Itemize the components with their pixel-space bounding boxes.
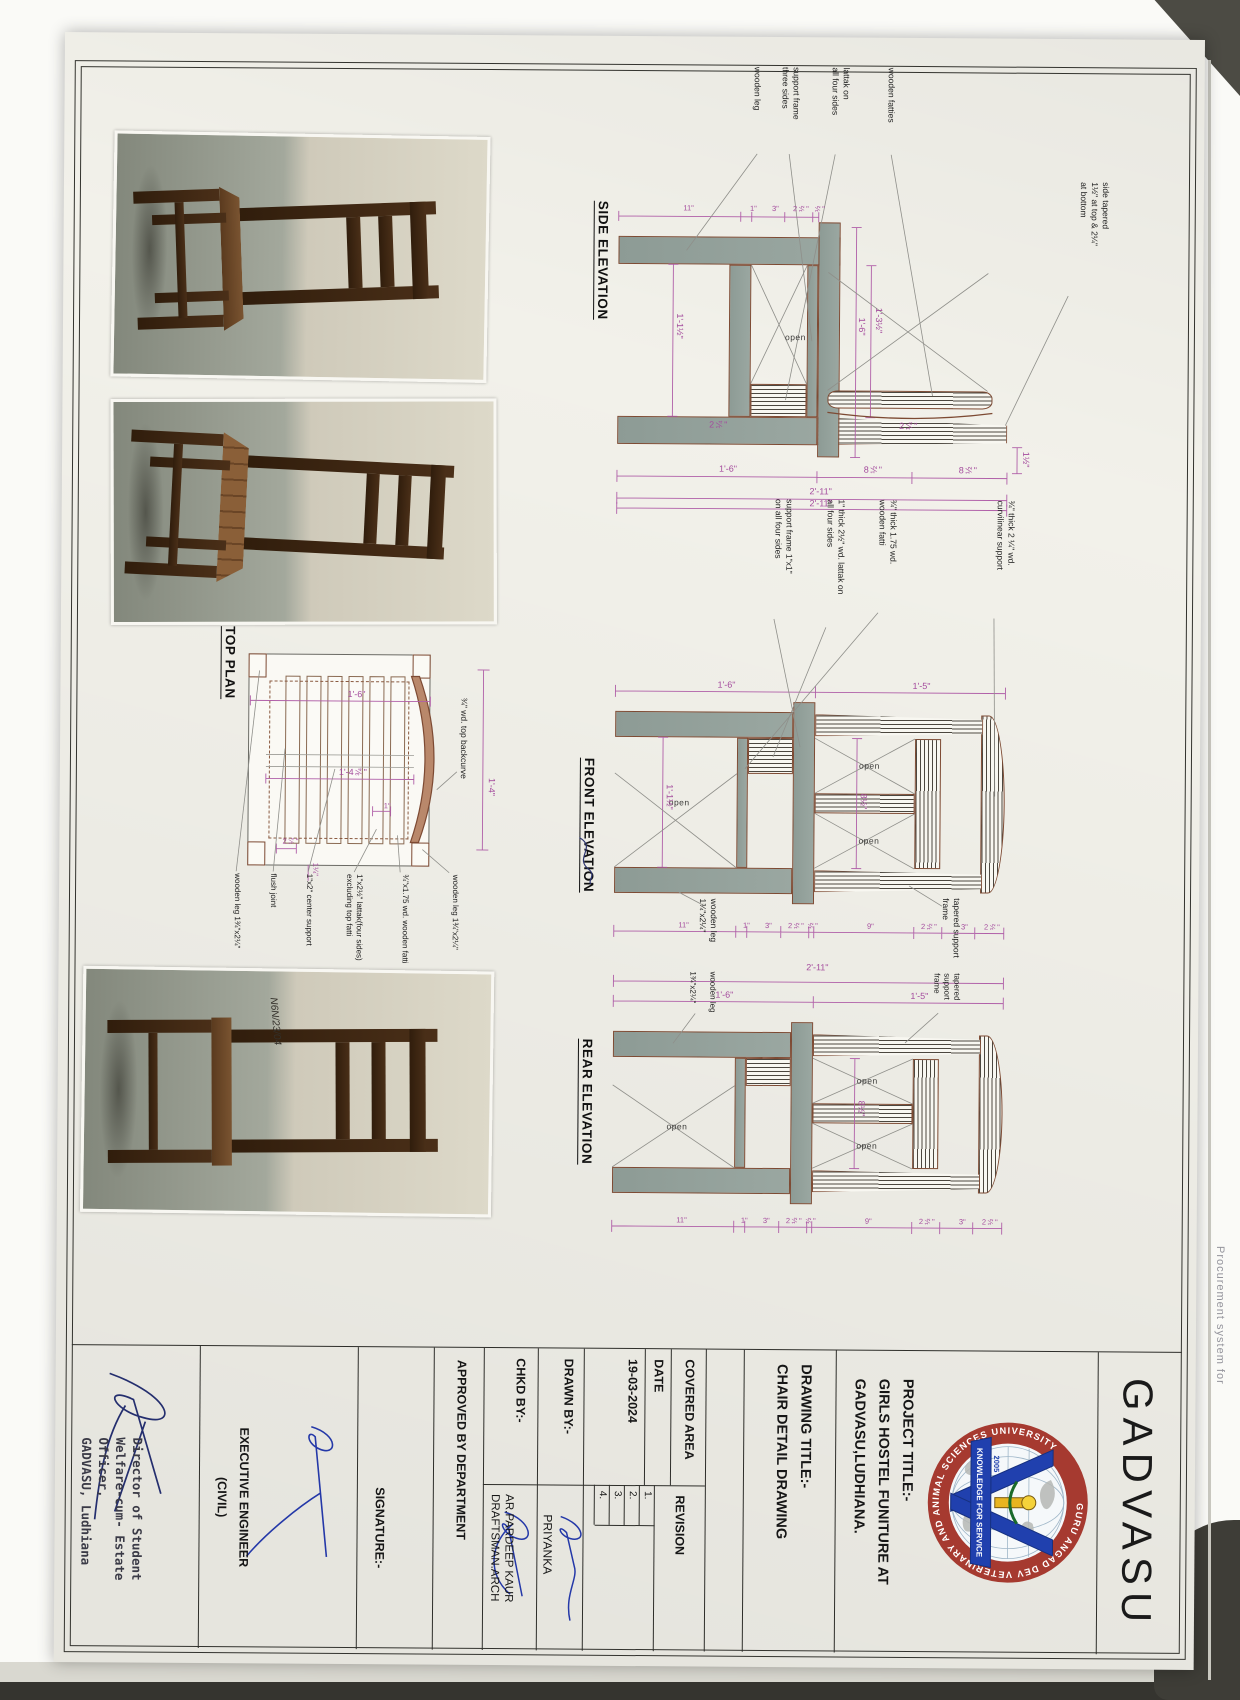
side-dim: ½" <box>813 204 825 213</box>
project-title-line1: GIRLS HOSTEL FUNITURE AT <box>874 1379 891 1585</box>
background-page-text: Procurement system for <box>1214 1246 1226 1385</box>
front-open-label: open <box>858 836 879 846</box>
stamp-line-3: Officer, <box>95 1437 112 1497</box>
cell-line <box>593 1485 595 1525</box>
stamp-cell: Director of Student Welfare-cum- Estate … <box>70 1345 200 1648</box>
front-label-6a: wooden leg <box>708 899 719 943</box>
rear-elevation-drawing: tapered support frame wooden leg 1¾"x2¼"… <box>562 971 1014 1249</box>
rear-dim: 8½" <box>856 1101 866 1117</box>
date-value: 19-03-2024 <box>625 1359 639 1423</box>
front-dim: 2½" <box>788 921 804 930</box>
rear-open-label: open <box>856 1141 877 1151</box>
side-dim: 3" <box>772 204 779 213</box>
side-dim-taper: 1½" <box>1021 452 1031 468</box>
drawing-title: CHAIR DETAIL DRAWING <box>773 1364 790 1539</box>
plan-label-1: wooden leg 1¾"x2¼" <box>450 875 461 965</box>
side-label-support-1: support frame <box>791 67 802 120</box>
drawing-sheet: wooden fatties lattak on all four sides … <box>54 32 1205 1670</box>
front-label-3a: 1" thick 2½" wd. lattak on <box>835 499 846 594</box>
rear-label-1b: frame <box>931 973 941 1025</box>
date-label: DATE <box>652 1359 666 1392</box>
chkd-by-cell: CHKD BY:- AR.PARDEEP KAUR DRAFTSMAN.ARCH <box>482 1348 538 1650</box>
exec-engineer-cell: EXECUTIVE ENGINEER (CIVIL) <box>198 1346 358 1649</box>
rear-label-1a: tapered support <box>941 973 961 1025</box>
plan-dim-top: 1'-4" <box>487 778 497 796</box>
side-dim: 1'-6" <box>857 318 867 336</box>
stamp-line-2: Welfare-cum- Estate <box>111 1437 128 1580</box>
side-open-label: open <box>785 332 806 342</box>
front-label-1b: curvilinear support <box>995 501 1006 571</box>
exec-signature <box>240 1406 351 1597</box>
rear-dim: 11" <box>676 1215 687 1224</box>
org-name: GADVASU <box>1112 1352 1162 1654</box>
rear-dim: 2½" <box>919 1217 935 1226</box>
side-dim-overall: 2'-11" <box>810 486 832 496</box>
plan-label-4: 1"x2" center support <box>304 874 315 964</box>
svg-text:KNOWLEDGE FOR SERVICE: KNOWLEDGE FOR SERVICE <box>974 1448 984 1558</box>
side-label-fatties: wooden fatties <box>886 68 897 123</box>
covered-revision-cell: COVERED AREA DATE 19-03-2024 REVISION 1.… <box>582 1349 706 1652</box>
cell-line <box>623 1485 625 1525</box>
side-label-lattak-2: all four sides <box>830 67 841 115</box>
front-label-1a: ¾" thick 2 ¼" wd. <box>1006 501 1017 566</box>
chair-photo-2 <box>110 398 496 625</box>
cell-line <box>638 1485 640 1525</box>
blank-cell <box>704 1350 744 1652</box>
side-label-lattak-1: lattak on <box>841 67 852 99</box>
project-title-line2: GADVASU,LUDHIANA. <box>851 1379 868 1534</box>
drawn-by-name: PRIYANKA <box>540 1514 554 1574</box>
front-dim: 8½" <box>859 794 869 810</box>
drawn-by-signature <box>550 1508 591 1628</box>
scan-edge-line <box>1208 60 1211 1680</box>
side-elevation-drawing: wooden fatties lattak on all four sides … <box>572 61 1120 520</box>
rear-dim: ½" <box>804 1216 816 1225</box>
approved-label: APPROVED BY DEPARTMENT <box>454 1360 469 1540</box>
photo-chair <box>128 422 456 606</box>
side-linework <box>572 61 1120 520</box>
svg-text:2005: 2005 <box>992 1456 1001 1473</box>
side-note-3: at bottom <box>1078 182 1089 218</box>
top-plan-drawing: ¾" wd. top backcurve 1'-4" 1'-6" 1'-4¾" … <box>173 608 506 995</box>
approved-cell: APPROVED BY DEPARTMENT <box>432 1348 484 1650</box>
front-dim: 1'-6" <box>718 680 736 690</box>
column-divider <box>483 1484 537 1486</box>
rear-dim-overall: 2'-11" <box>806 962 828 972</box>
plan-label-2: ¾"x1.75 wd. wooden fatti <box>400 874 411 964</box>
photo-chair <box>135 167 441 345</box>
top-plan-title: TOP PLAN <box>220 626 238 699</box>
cell-line <box>595 1525 655 1527</box>
rear-dim: 1" <box>741 1216 748 1225</box>
rear-dim: 3" <box>763 1216 770 1225</box>
side-dim: 11" <box>683 203 694 212</box>
side-note-1: side tapered <box>1100 182 1111 229</box>
side-leg-dim: 2¼" <box>709 420 727 430</box>
chkd-by-title: DRAFTSMAN.ARCH <box>488 1494 501 1601</box>
side-dim: 8½" <box>959 465 977 475</box>
cell-line <box>644 1349 646 1485</box>
plan-dim-small: 2¼" <box>283 837 299 846</box>
revision-4: 4. <box>597 1491 608 1499</box>
drawn-by-cell: DRAWN BY:- PRIYANKA <box>536 1348 584 1650</box>
front-dim: 3" <box>765 921 772 930</box>
front-label-4a: support frame 1"x1" <box>784 499 795 574</box>
plan-label-5: flush joint <box>268 873 279 963</box>
signature-label: SIGNATURE:- <box>372 1487 387 1568</box>
plan-dim-inner: 1'-4¾" <box>339 767 367 777</box>
front-label-2b: wooden fatti <box>877 500 888 546</box>
plan-label-3: 1"x2½" lattak(four sides) excluding top … <box>344 874 365 966</box>
drawing-title-label: DRAWING TITLE:- <box>797 1364 814 1488</box>
signature-cell: SIGNATURE:- <box>356 1347 434 1650</box>
pen-squiggle <box>569 836 599 886</box>
org-name-cell: GADVASU <box>1096 1352 1182 1655</box>
stamp-line-1: Director of Student <box>128 1438 145 1581</box>
plan-curve-label: ¾" wd. top backcurve <box>458 698 469 779</box>
front-open-label: open <box>859 761 880 771</box>
cell-line <box>670 1349 672 1485</box>
scanned-drawing-page: { "page": { "edge_text": "Procurement sy… <box>0 0 1240 1700</box>
rear-open-label: open <box>666 1121 687 1131</box>
front-dim: 2½" <box>921 922 937 931</box>
rear-elevation-title: REAR ELEVATION <box>577 1039 595 1165</box>
side-elevation-title: SIDE ELEVATION <box>593 201 611 320</box>
front-dim: 9" <box>867 922 874 931</box>
front-label-5b: frame <box>940 898 951 920</box>
chair-photo-1 <box>110 130 490 383</box>
rear-dim: 1'-5" <box>910 991 928 1001</box>
project-title-label: PROJECT TITLE:- <box>899 1379 916 1502</box>
stamp-line-4: GADVASU, Ludhiana <box>77 1437 94 1565</box>
rear-dim: 2½" <box>786 1216 802 1225</box>
column-divider <box>537 1484 583 1486</box>
plan-dim-left: 1'-6" <box>347 689 365 699</box>
front-label-6b: 1¾"x2¼" <box>697 898 708 932</box>
rear-open-label: open <box>857 1076 878 1086</box>
front-dim: 11" <box>678 920 689 929</box>
side-dim: 8½" <box>864 465 882 475</box>
plan-dim-small: 1" <box>384 801 391 810</box>
side-label-support-2: three sides <box>780 67 791 109</box>
scan-dark-bottom-strip <box>0 1682 1240 1700</box>
project-cell: GURU ANGAD DEV VETERINARY AND ANIMAL SCI… <box>834 1350 1098 1654</box>
cell-line <box>608 1485 610 1525</box>
front-dim: 1'-5" <box>913 681 931 691</box>
side-dim: 1'-1½" <box>675 313 685 339</box>
side-leg-dim: 2¼" <box>899 421 917 431</box>
front-elevation-drawing: ¾" thick 2 ¼" wd. curvilinear support ¾"… <box>564 496 1017 949</box>
front-label-2a: ¾" thick 1.75 wd. <box>888 500 899 565</box>
front-dim: 2½" <box>984 922 1000 931</box>
chkd-by-name: AR.PARDEEP KAUR <box>502 1494 515 1602</box>
plan-label-6: wooden leg 1¾"x2¼" <box>232 873 243 963</box>
title-block: GADVASU GURU ANGAD DEV VETERINARY AND AN… <box>70 1344 1182 1654</box>
rear-dim: 9" <box>865 1217 872 1226</box>
front-dim-overall: 2'-11" <box>809 498 831 508</box>
side-dim: 1'-6" <box>719 464 737 474</box>
revision-3: 3. <box>612 1491 623 1499</box>
rear-dim: 3" <box>959 1217 966 1226</box>
revision-1: 1. <box>642 1491 653 1499</box>
university-logo: GURU ANGAD DEV VETERINARY AND ANIMAL SCI… <box>924 1419 1091 1586</box>
exec-engineer-line1: EXECUTIVE ENGINEER <box>236 1346 252 1648</box>
front-label-4b: on all four sides <box>773 499 784 559</box>
front-dim: 1'-1½" <box>665 784 675 810</box>
chair-photo-3: N6N/23/04 <box>80 966 494 1218</box>
front-dim: ½" <box>806 921 818 930</box>
chkd-by-label: CHKD BY:- <box>513 1358 527 1422</box>
side-label-leg: wooden leg <box>752 67 763 111</box>
side-dim: 1'-3½" <box>874 308 884 334</box>
revision-2: 2. <box>627 1491 638 1499</box>
revision-label: REVISION <box>672 1495 686 1555</box>
rear-dim: 1'-6" <box>715 990 733 1000</box>
cell-line <box>652 1485 654 1651</box>
exec-engineer-line2: (CIVIL) <box>214 1346 230 1648</box>
side-note-2: 1½" at top & 2¼" <box>1089 182 1100 246</box>
side-dim: 2½" <box>793 204 809 213</box>
covered-area-label: COVERED AREA <box>682 1359 697 1459</box>
front-dim: 3" <box>961 922 968 931</box>
drawn-by-label: DRAWN BY:- <box>561 1359 576 1435</box>
side-dim: 1" <box>750 204 757 213</box>
rear-label-2b: 1¾"x2¼" <box>687 971 697 1023</box>
front-dim: 1" <box>743 921 750 930</box>
rear-dim: 2½" <box>982 1217 998 1226</box>
drawing-title-cell: DRAWING TITLE:- CHAIR DETAIL DRAWING <box>742 1350 836 1653</box>
